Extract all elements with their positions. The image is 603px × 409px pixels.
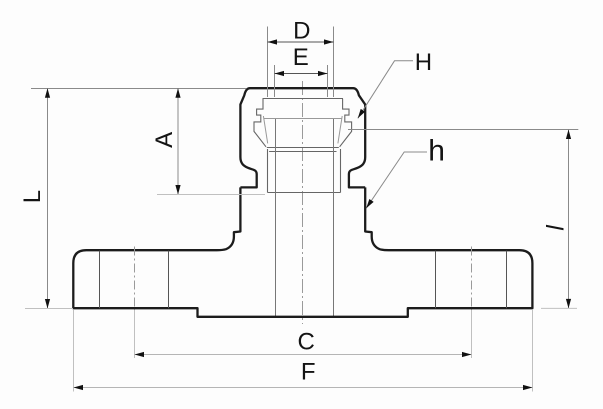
svg-text:H: H (415, 49, 432, 76)
svg-text:L: L (19, 190, 46, 203)
svg-text:C: C (298, 329, 315, 356)
svg-text:F: F (301, 359, 316, 386)
svg-text:E: E (293, 44, 309, 71)
svg-text:h: h (428, 135, 445, 168)
svg-text:D: D (293, 18, 310, 45)
svg-text:A: A (151, 132, 178, 148)
svg-text:l: l (542, 225, 569, 231)
